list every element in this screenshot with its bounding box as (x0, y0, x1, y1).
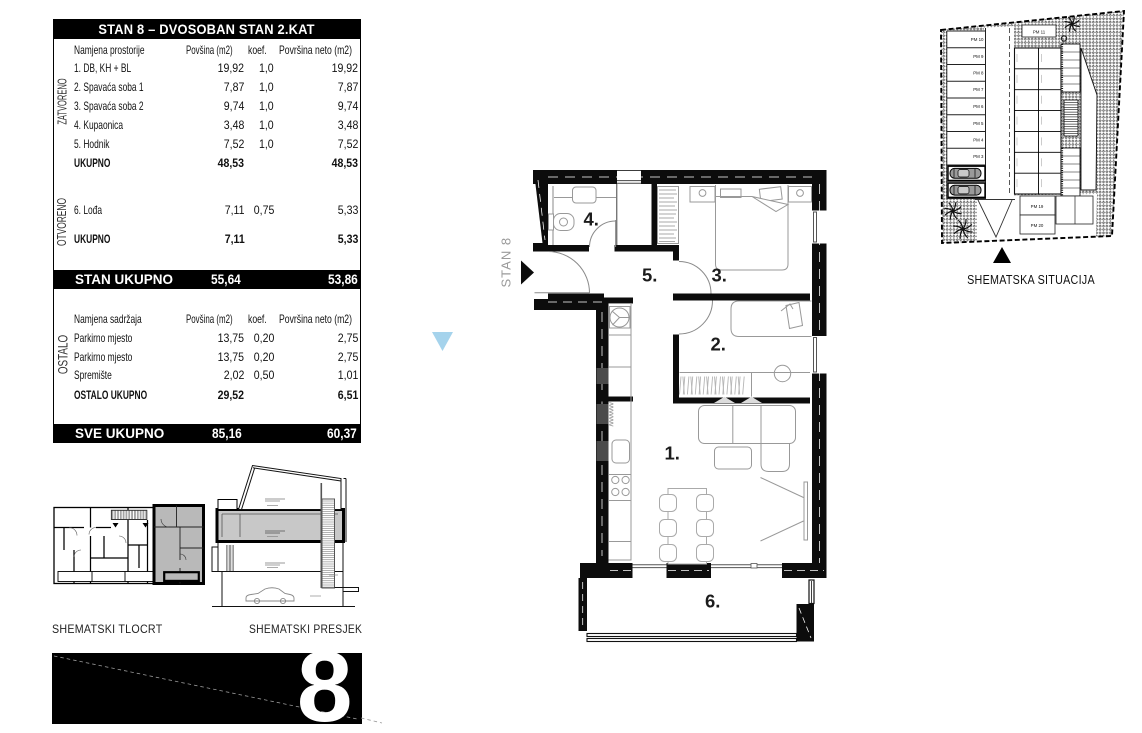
svg-text:PM 19: PM 19 (1031, 204, 1044, 209)
svg-text:PM 7: PM 7 (973, 87, 984, 92)
svg-text:PM 5: PM 5 (973, 121, 984, 126)
svg-text:3.: 3. (712, 265, 727, 286)
svg-text:6.: 6. (705, 591, 720, 612)
svg-text:PM 11: PM 11 (1033, 30, 1046, 35)
svg-text:PM 4: PM 4 (973, 138, 984, 143)
svg-text:4.: 4. (584, 209, 599, 230)
svg-text:PM 20: PM 20 (1031, 223, 1044, 228)
svg-text:1.: 1. (665, 443, 680, 464)
svg-text:PM 9: PM 9 (973, 54, 984, 59)
svg-text:PM 10: PM 10 (971, 37, 984, 42)
svg-text:PM 8: PM 8 (973, 71, 984, 76)
svg-text:PM 3: PM 3 (973, 154, 984, 159)
svg-text:PM 6: PM 6 (973, 104, 984, 109)
svg-text:5.: 5. (642, 265, 657, 286)
svg-text:2.: 2. (711, 334, 726, 355)
